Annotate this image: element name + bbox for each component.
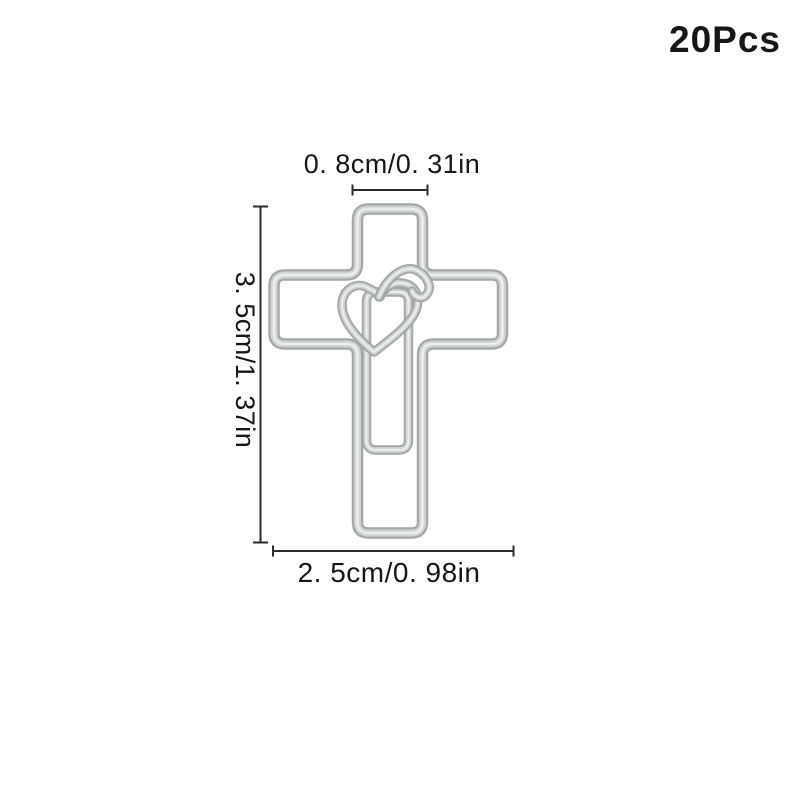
clip-outer-cross-wire: [274, 209, 503, 533]
product-image-canvas: 20Pcs 0. 8cm/0. 31in 3. 5cm/1. 37in 2. 5…: [0, 0, 800, 800]
dimension-label-bottom: 2. 5cm/0. 98in: [249, 557, 529, 589]
dimension-line-bottom: [273, 546, 514, 557]
dimension-line-top: [353, 185, 428, 196]
dimension-label-top: 0. 8cm/0. 31in: [252, 149, 532, 180]
clip-inner-loop-wire: [367, 292, 409, 450]
clip-and-dimensions-graphic: [0, 0, 800, 800]
dimension-label-left: 3. 5cm/1. 37in: [231, 245, 259, 475]
quantity-badge: 20Pcs: [669, 19, 781, 61]
